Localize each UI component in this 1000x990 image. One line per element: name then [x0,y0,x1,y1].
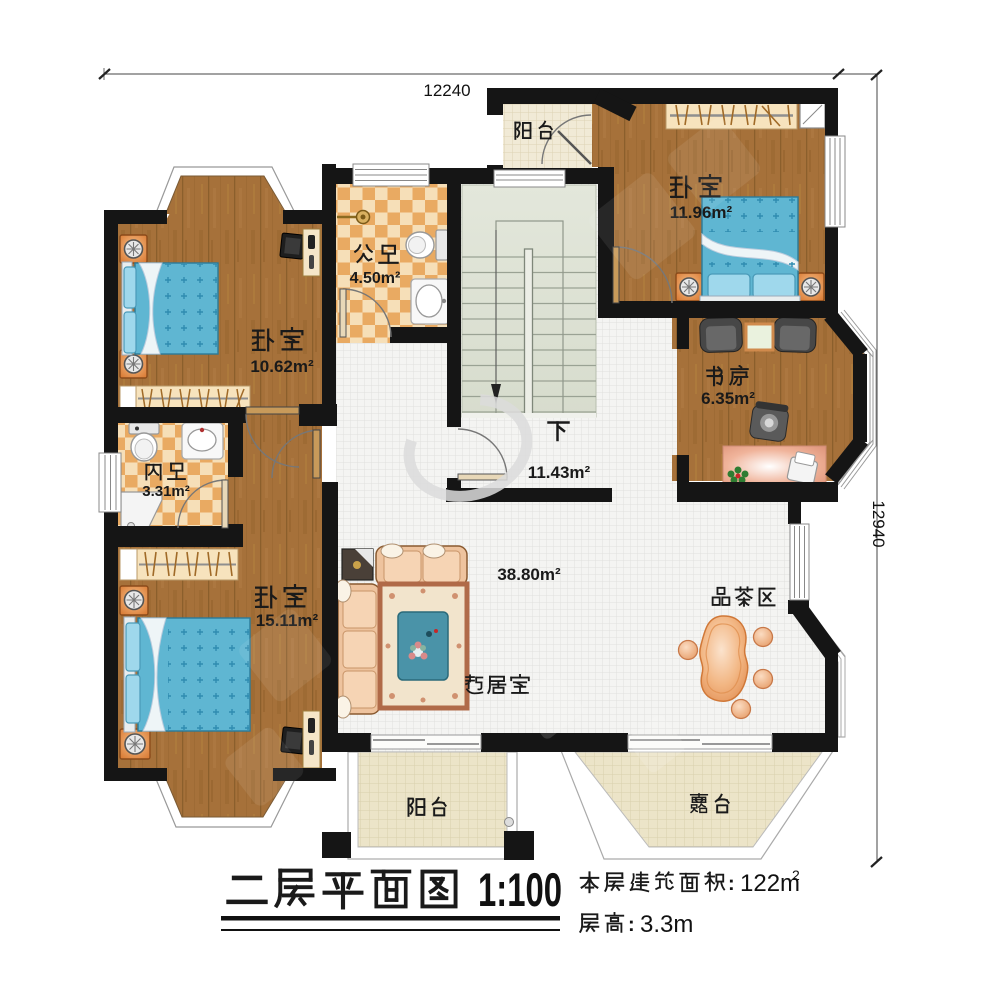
svg-text::: : [628,914,635,936]
svg-text:3.3m: 3.3m [640,911,693,938]
svg-text:38.80m²: 38.80m² [497,565,561,584]
svg-text:10.62m²: 10.62m² [250,357,314,376]
svg-text:11.43m²: 11.43m² [528,463,591,482]
svg-text:3.31m²: 3.31m² [142,483,190,500]
svg-text:1:100: 1:100 [478,863,562,916]
svg-text:6.35m²: 6.35m² [701,389,755,408]
svg-text:4.50m²: 4.50m² [350,270,401,287]
svg-text:12940: 12940 [869,500,888,547]
svg-text:2: 2 [792,867,800,883]
svg-text::: : [728,873,735,895]
svg-text:12240: 12240 [423,81,470,100]
